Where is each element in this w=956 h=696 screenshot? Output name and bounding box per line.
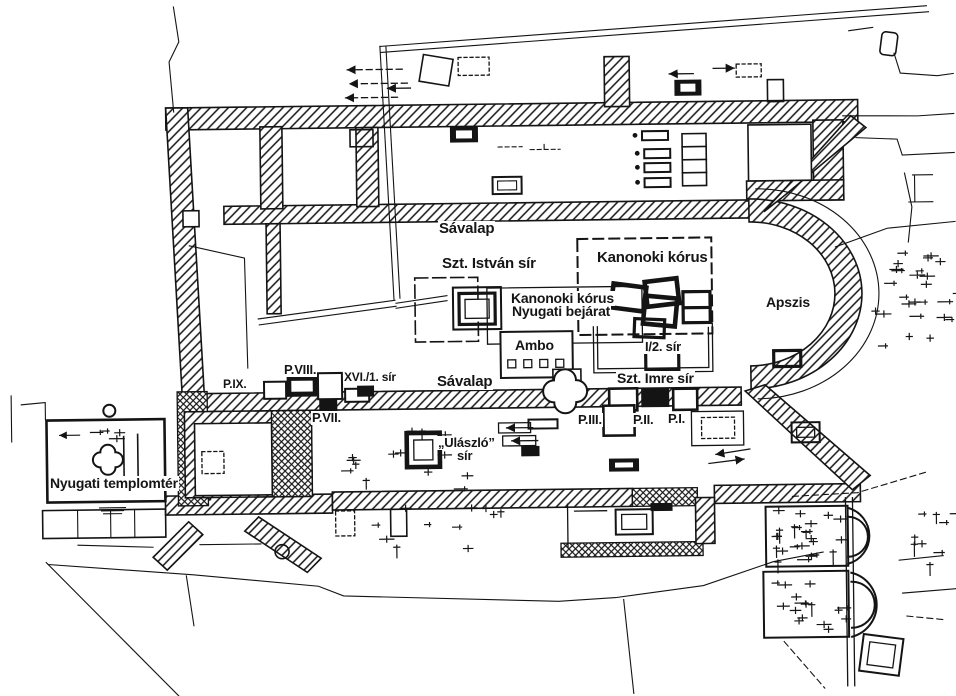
label-p-ix: P.IX. — [222, 378, 247, 391]
label-nyugati-templomter: Nyugati templomtér — [49, 476, 179, 491]
label-ulaszlo-sir-2: sír — [456, 449, 473, 463]
label-p-ii: P.II. — [632, 413, 654, 427]
label-xvi-1-sir: XVI./1. sír — [343, 371, 397, 384]
plan-labels: Sávalap Szt. István sír Kanonoki kórus K… — [0, 0, 956, 696]
label-p-vii: P.VII. — [311, 411, 342, 425]
label-savalap-north: Sávalap — [438, 221, 495, 237]
label-kanonoki-korus-bejarat-2: Nyugati bejárat — [511, 304, 611, 319]
label-p-iii: P.III. — [577, 413, 603, 427]
label-p-i: P.I. — [667, 412, 686, 426]
label-i2-sir: I/2. sír — [644, 340, 682, 354]
label-ambo: Ambo — [514, 338, 555, 353]
excavation-plan: Sávalap Szt. István sír Kanonoki kórus K… — [0, 0, 956, 696]
label-p-viii: P.VIII. — [283, 363, 317, 377]
label-savalap-south: Sávalap — [436, 374, 493, 390]
label-apszis: Apszis — [765, 295, 811, 310]
label-szt-istvan-sir: Szt. István sír — [441, 256, 537, 272]
label-szt-imre-sir: Szt. Imre sír — [616, 371, 695, 386]
label-kanonoki-korus: Kanonoki kórus — [596, 250, 709, 266]
